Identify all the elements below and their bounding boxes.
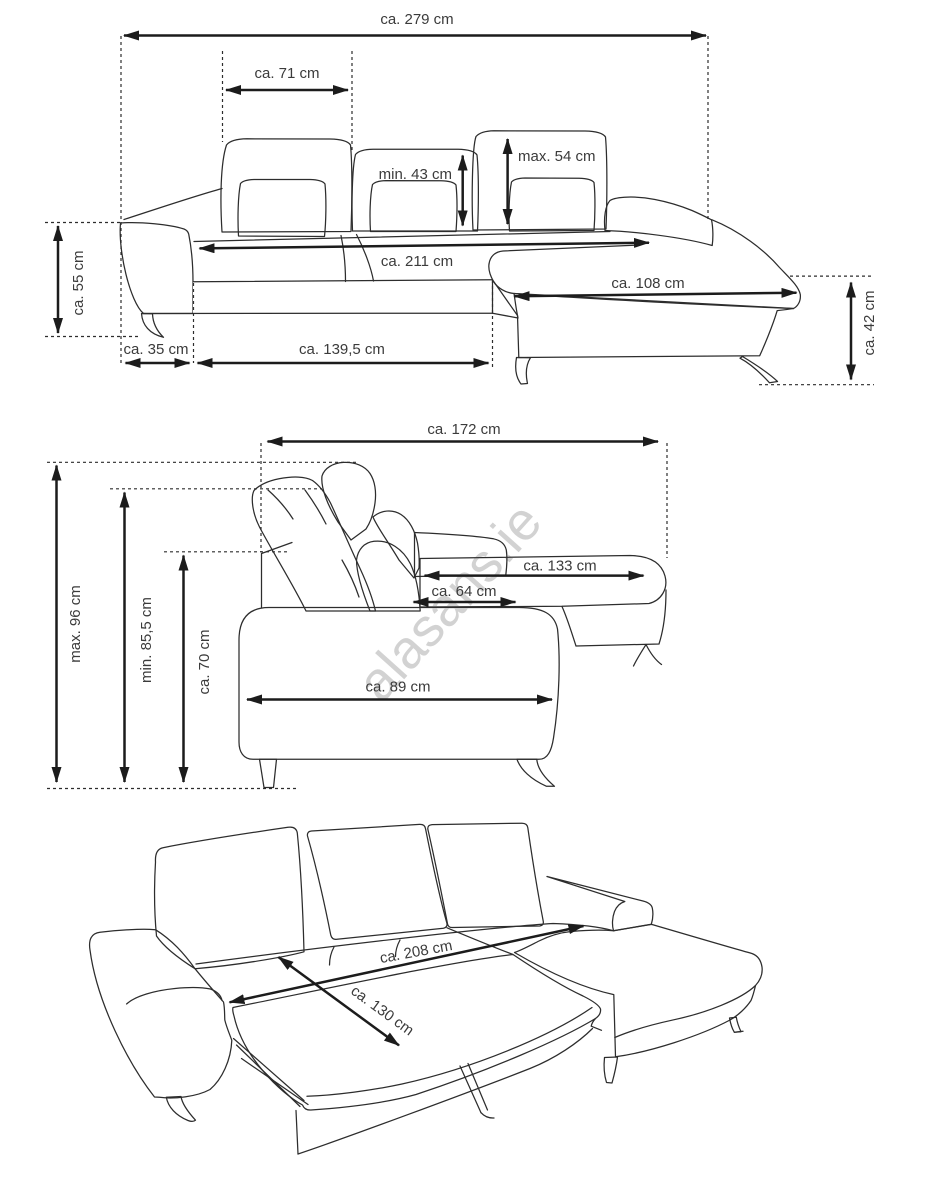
svg-text:max. 96 cm: max. 96 cm <box>67 585 84 663</box>
svg-text:ca. 130 cm: ca. 130 cm <box>347 982 416 1039</box>
svg-text:ca. 42 cm: ca. 42 cm <box>861 290 878 355</box>
svg-text:ca. 35 cm: ca. 35 cm <box>123 341 188 358</box>
svg-text:ca. 55 cm: ca. 55 cm <box>70 250 87 315</box>
svg-text:max. 54 cm: max. 54 cm <box>518 148 596 165</box>
svg-text:ca. 172 cm: ca. 172 cm <box>427 421 500 438</box>
svg-text:ca. 279 cm: ca. 279 cm <box>380 11 453 28</box>
svg-text:ca. 133 cm: ca. 133 cm <box>523 558 596 575</box>
svg-text:min. 85,5 cm: min. 85,5 cm <box>138 597 155 683</box>
svg-text:ca. 64 cm: ca. 64 cm <box>431 583 496 600</box>
svg-text:ca. 71 cm: ca. 71 cm <box>254 65 319 82</box>
svg-text:ca. 108 cm: ca. 108 cm <box>611 275 684 292</box>
svg-text:ca. 70 cm: ca. 70 cm <box>196 629 213 694</box>
svg-text:ca. 89 cm: ca. 89 cm <box>365 679 430 696</box>
svg-text:ca. 211 cm: ca. 211 cm <box>381 253 453 270</box>
svg-text:min. 43 cm: min. 43 cm <box>379 166 452 183</box>
svg-text:ca. 139,5 cm: ca. 139,5 cm <box>299 341 385 358</box>
